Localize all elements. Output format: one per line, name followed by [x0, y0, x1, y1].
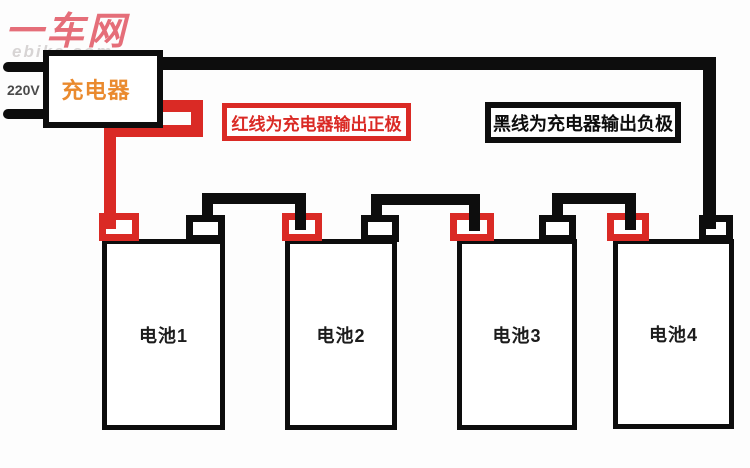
jumper-3-right-drop: [625, 193, 636, 230]
jumper-3-horizontal: [552, 193, 636, 204]
red-wire-callout: 红线为充电器输出正极: [222, 103, 411, 141]
black-wire-callout: 黑线为充电器输出负极: [485, 102, 681, 143]
jumper-1-left-drop: [202, 193, 213, 219]
jumper-2-left-drop: [371, 194, 382, 219]
charger-box: 充电器: [43, 50, 163, 128]
battery-2-box: 电池2: [285, 239, 397, 430]
jumper-1-right-drop: [295, 193, 306, 230]
battery-1-box: 电池1: [102, 239, 225, 430]
charger-negative-wire-vertical: [703, 57, 716, 229]
jumper-2-right-drop: [469, 194, 480, 231]
jumper-2-horizontal: [371, 194, 480, 205]
charger-negative-wire-horizontal: [158, 57, 713, 70]
plug-prong-bottom: [3, 109, 44, 119]
charger-label: 充电器: [61, 73, 130, 105]
mains-voltage-label: 220V: [7, 82, 40, 98]
charger-positive-wire-seg4: [104, 125, 116, 229]
battery-2-label: 电池2: [316, 322, 365, 348]
plug-prong-top: [3, 62, 44, 72]
battery-series-charging-diagram: 一车网 ebike.com 220V 充电器 红线为充电器输出正极 黑线为充电器…: [0, 0, 750, 468]
battery-3-negative-terminal: [539, 215, 576, 242]
battery-3-box: 电池3: [457, 239, 577, 430]
jumper-1-horizontal: [202, 193, 306, 204]
jumper-3-left-drop: [552, 193, 563, 219]
battery-1-label: 电池1: [139, 322, 188, 348]
battery-4-box: 电池4: [613, 239, 734, 429]
battery-2-negative-terminal: [361, 215, 399, 242]
battery-1-negative-terminal: [186, 215, 225, 242]
battery-4-label: 电池4: [649, 321, 698, 347]
battery-3-label: 电池3: [492, 322, 541, 348]
